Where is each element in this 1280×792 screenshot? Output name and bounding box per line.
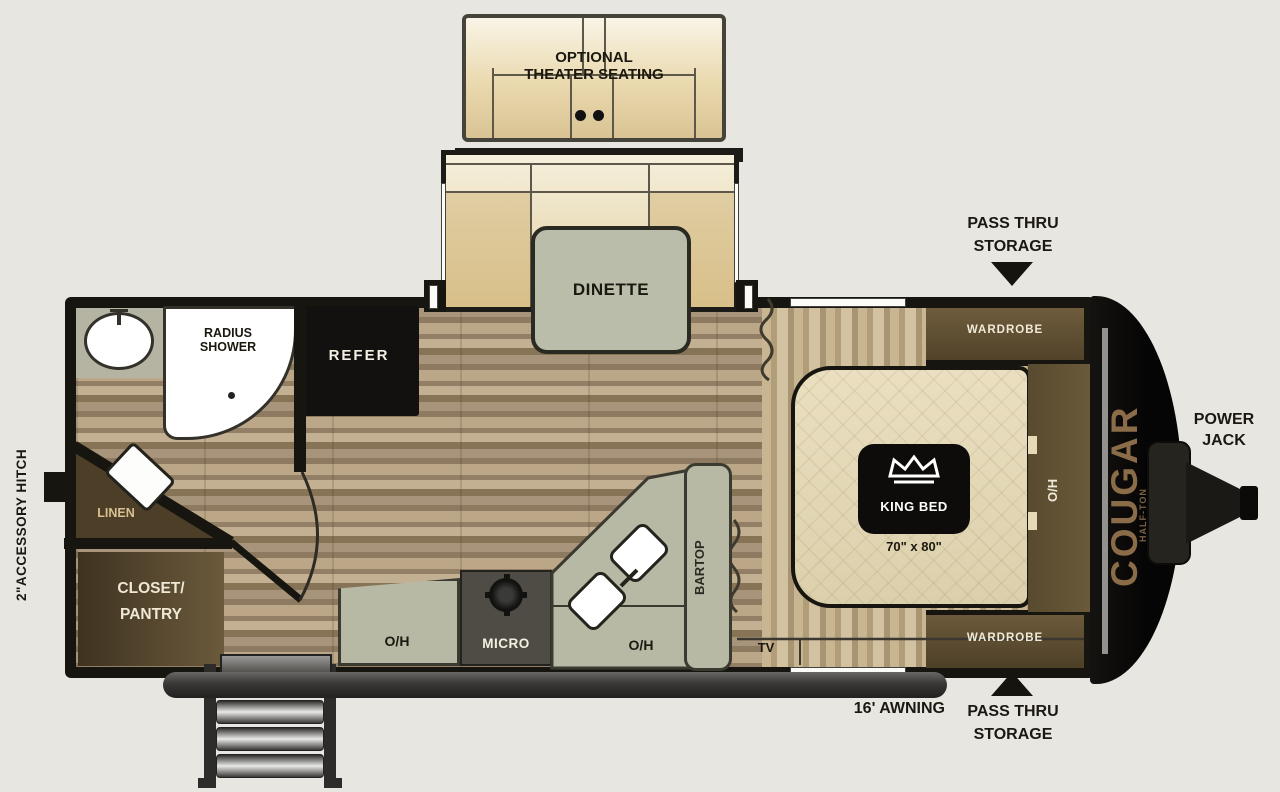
pass-thru-bottom-line1: PASS THRU (948, 700, 1078, 723)
bed-overhead-label: O/H (1046, 450, 1070, 530)
king-bed-label: KING BED (858, 500, 970, 515)
pass-thru-bottom-label: PASS THRU STORAGE (948, 700, 1078, 746)
step-foot (324, 778, 342, 788)
step-foot (198, 778, 216, 788)
power-jack-label: POWER JACK (1178, 410, 1270, 452)
overhead-right-label: O/H (606, 638, 676, 654)
slide-window (734, 183, 739, 283)
bench-line (446, 163, 734, 165)
closet-line2: PANTRY (78, 602, 224, 628)
door-leaf (231, 542, 301, 600)
overhead-left-label: O/H (352, 634, 442, 650)
bench-seat (446, 191, 530, 307)
floorplan-page: { "colors": { "background": "#e8e6e1", "… (0, 0, 1280, 792)
cupholder-icon (575, 110, 586, 121)
bed-size-label: 70" x 80" (858, 540, 970, 555)
triangle-down-icon (991, 262, 1033, 286)
pass-thru-bottom-line2: STORAGE (948, 723, 1078, 746)
closet-pantry-label: CLOSET/ PANTRY (78, 576, 224, 629)
cupholder-icon (593, 110, 604, 121)
pass-thru-top-line1: PASS THRU (948, 212, 1078, 235)
theater-line1: OPTIONAL (466, 50, 722, 67)
entry-step (216, 754, 324, 778)
pass-thru-top-label: PASS THRU STORAGE (948, 212, 1078, 258)
brand-sub-wordmark: HALF-TON (1138, 440, 1150, 590)
entry-step-well (220, 654, 332, 674)
theater-seating-slide: OPTIONAL THEATER SEATING (462, 14, 726, 142)
jamb-trim (744, 285, 753, 309)
slide-window (441, 183, 446, 283)
triangle-up-icon (991, 672, 1033, 696)
wall-segment (294, 304, 306, 472)
jamb-trim (429, 285, 438, 309)
bench-line (446, 191, 734, 193)
wall-segment (64, 538, 232, 549)
power-jack-tip (1240, 486, 1258, 520)
theater-label: OPTIONAL THEATER SEATING (466, 50, 722, 84)
bartop-label: BARTOP (693, 495, 723, 640)
closet-line1: CLOSET/ (78, 576, 224, 602)
hitch-label: 2"ACCESSORY HITCH (14, 386, 36, 664)
power-jack-line1: POWER (1178, 410, 1270, 431)
seat-divider-line (612, 74, 614, 138)
linen-label: LINEN (80, 506, 152, 520)
wardrobe-bottom-label: WARDROBE (926, 632, 1084, 645)
theater-line2: THEATER SEATING (466, 67, 722, 84)
entry-step (216, 727, 324, 751)
door-swing-arc (300, 472, 318, 600)
wardrobe-top-label: WARDROBE (926, 324, 1084, 337)
dinette-label: DINETTE (573, 280, 649, 299)
shower-line2: SHOWER (173, 340, 283, 354)
shower-line1: RADIUS (173, 326, 283, 340)
shower-label: RADIUS SHOWER (173, 326, 283, 354)
king-bed-badge (858, 444, 970, 534)
entry-step (216, 700, 324, 724)
power-jack-line2: JACK (1178, 431, 1270, 452)
crown-icon (884, 452, 944, 486)
curtain-line (761, 299, 772, 380)
awning-bar (163, 672, 947, 698)
awning-label: 16' AWNING (810, 700, 945, 718)
pass-thru-top-line2: STORAGE (948, 235, 1078, 258)
micro-label: MICRO (460, 636, 552, 651)
power-jack-cone (1186, 462, 1246, 544)
refer-label: REFER (299, 348, 419, 365)
power-jack-base (1148, 442, 1190, 564)
dinette-table: DINETTE (531, 226, 691, 354)
tv-label: TV (744, 641, 788, 656)
seat-divider-line (570, 74, 572, 138)
